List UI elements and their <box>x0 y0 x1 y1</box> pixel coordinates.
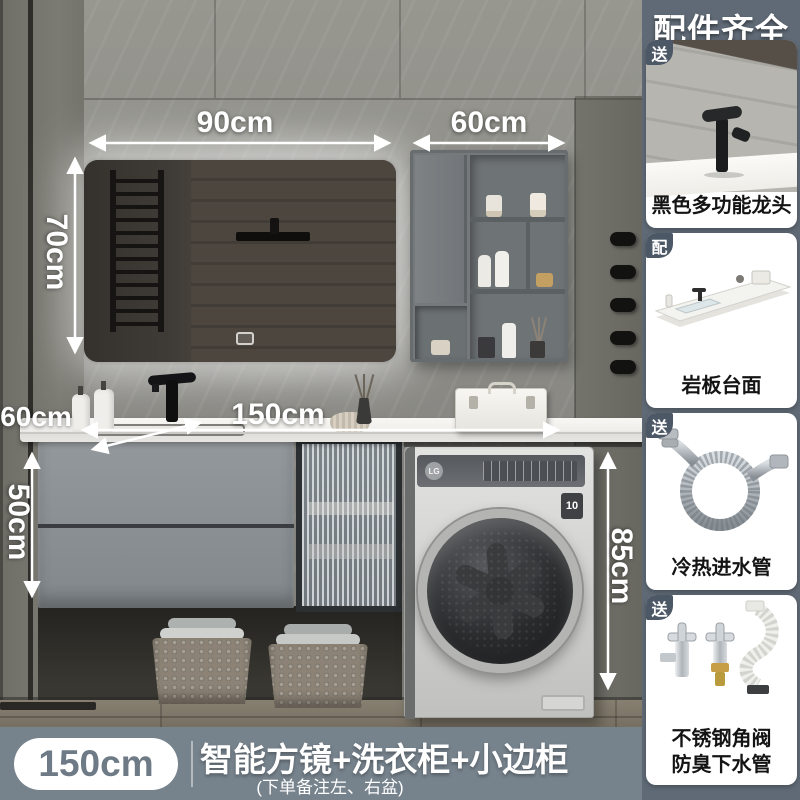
wall-cabinet-shelves <box>470 155 565 359</box>
perfume-bottle-decor <box>478 337 495 358</box>
washing-machine-control-panel: LG <box>417 455 585 487</box>
mirror-reflection-towel-radiator <box>110 170 164 332</box>
bottle-pump <box>78 386 83 395</box>
accessory-caption: 不锈钢角阀 <box>646 722 797 751</box>
footer-divider <box>191 741 193 787</box>
tile-grout-line <box>399 0 401 98</box>
mirror-reflection-wood-wall <box>191 160 396 362</box>
brand-logo: LG <box>425 462 443 480</box>
floor-drain <box>0 702 96 710</box>
fluted-glass-door <box>302 444 396 606</box>
dried-sprig <box>363 374 365 400</box>
towel-behind-glass <box>308 502 394 515</box>
accessory-panel-valves: 送 不锈钢角阀 防臭下水管 <box>646 595 797 785</box>
washing-machine: LG 10 <box>404 446 594 718</box>
shelf-board <box>470 289 565 294</box>
storage-case <box>455 388 547 432</box>
wall-cabinet-open-cell <box>415 306 467 359</box>
drum-spoke <box>486 542 514 639</box>
soap-bottle <box>72 394 90 432</box>
pump-bottle-decor <box>502 323 516 358</box>
woven-basket <box>268 644 368 708</box>
woven-basket <box>152 638 252 704</box>
faucet-photo-shadow <box>704 172 744 178</box>
shelf-board <box>470 217 565 222</box>
soap-bottle <box>94 389 114 432</box>
mirror-reflection-shower-arm <box>270 218 279 234</box>
faucet-aerator <box>152 384 159 392</box>
bottle-decor <box>478 255 491 287</box>
product-subtitle: (下单备注左、右盆) <box>200 773 460 798</box>
wall-hook <box>610 298 636 312</box>
candle-decor <box>486 195 502 217</box>
accessory-panel-faucet: 送 黑色多功能龙头 <box>646 40 797 228</box>
diffuser-reed <box>539 317 547 343</box>
wall-hook <box>610 360 636 374</box>
wall-hook <box>610 331 636 345</box>
drum-hub <box>486 577 514 605</box>
accessory-panel-countertop: 配 岩板台面 <box>646 233 797 408</box>
product-image: LG 10 <box>0 0 800 800</box>
towel-behind-glass <box>308 544 394 559</box>
black-faucet <box>166 380 178 422</box>
candle-decor <box>530 193 546 217</box>
dim-label-mirror-height: 70cm <box>39 214 73 291</box>
drum-spoke <box>452 562 547 621</box>
drawer-gap <box>38 524 294 528</box>
size-pill: 150cm <box>14 738 178 790</box>
undermount-sink <box>95 424 245 436</box>
hose-photo <box>646 413 797 555</box>
mirror-touch-button-icon <box>236 332 254 345</box>
dim-label-washer-height: 85cm <box>604 528 638 605</box>
tile-grout-line <box>214 0 216 98</box>
washing-machine-display <box>483 461 577 481</box>
tile-grout-line <box>84 98 645 100</box>
dim-label-mirror-width: 90cm <box>197 106 274 140</box>
tile-grout-line <box>584 0 586 98</box>
filter-hatch <box>541 695 585 711</box>
vanity-drawer-cabinet <box>38 442 294 608</box>
dim-label-cabinet-width: 60cm <box>451 106 528 140</box>
wall-hook <box>610 232 636 246</box>
dim-label-counter-length: 150cm <box>231 398 324 432</box>
faucet-photo <box>646 40 797 192</box>
fluted-glass-side-cabinet <box>296 438 402 612</box>
case-clasp <box>469 396 478 409</box>
reed-diffuser-decor <box>530 341 545 358</box>
wall-cabinet-door <box>415 155 467 303</box>
accessory-caption: 防臭下水管 <box>646 748 797 777</box>
case-clasp <box>526 396 535 409</box>
wall-cabinet <box>410 150 568 362</box>
washing-machine-side-trim <box>405 447 415 719</box>
dim-label-counter-depth: 60cm <box>0 401 72 433</box>
faucet-photo-body <box>716 118 728 172</box>
case-handle <box>488 382 516 394</box>
bottle-pump <box>101 381 106 390</box>
bottle-decor <box>495 251 509 287</box>
shower-glass-edge <box>0 0 3 705</box>
accessory-caption: 黑色多功能龙头 <box>646 189 797 218</box>
accessory-caption: 岩板台面 <box>646 369 797 398</box>
accessory-panel-hoses: 送 冷热进水管 <box>646 413 797 590</box>
drum-spoke <box>455 555 545 626</box>
accessories-sidebar: 配件齐全 送 黑色多功能龙头 配 <box>642 0 800 800</box>
accessory-caption: 冷热进水管 <box>646 551 797 580</box>
smart-mirror <box>84 160 396 362</box>
warranty-badge: 10 <box>561 493 583 519</box>
shelf-divider <box>526 222 530 289</box>
shower-glass-frame <box>28 0 33 705</box>
gold-jar-decor <box>536 273 553 287</box>
dim-label-vanity-height: 50cm <box>1 484 35 561</box>
wall-hook <box>610 265 636 279</box>
jar-decor <box>431 340 450 355</box>
washing-machine-door <box>418 509 582 673</box>
faucet-photo-knob <box>731 126 752 143</box>
